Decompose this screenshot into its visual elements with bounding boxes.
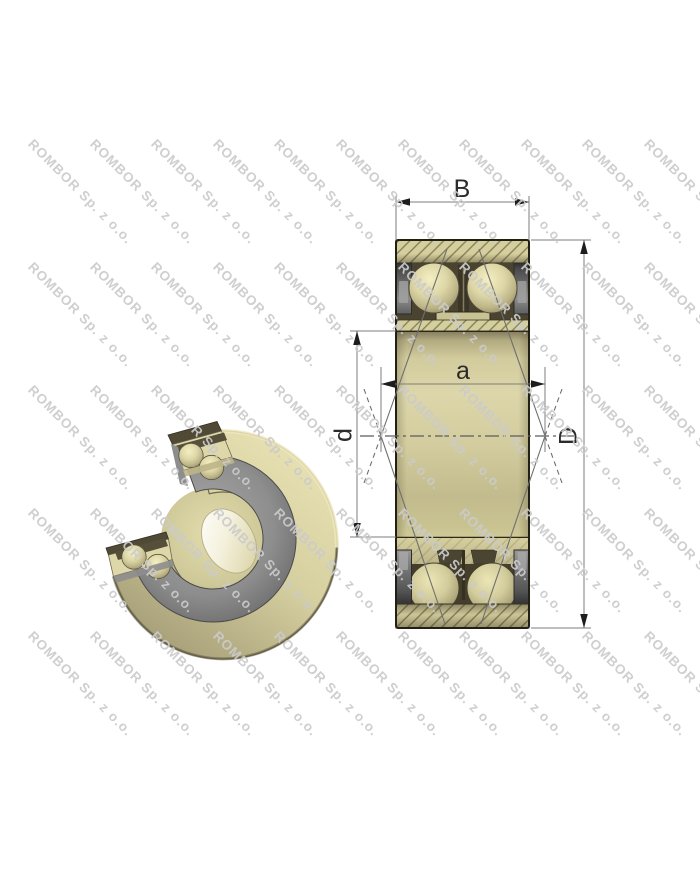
watermark-text: ROMBOR Sp. z o.o. [395,383,505,493]
watermark-text: ROMBOR Sp. z o.o. [210,629,320,739]
watermark-text: ROMBOR Sp. z o.o. [272,137,382,247]
watermark-text: ROMBOR Sp. z o.o. [580,383,690,493]
watermark-text: ROMBOR Sp. z o.o. [149,629,259,739]
watermark-text: ROMBOR Sp. z o.o. [210,383,320,493]
watermark-text: ROMBOR Sp. z o.o. [149,260,259,370]
watermark-text: ROMBOR Sp. z o.o. [457,137,567,247]
watermark-text: ROMBOR Sp. z o.o. [580,506,690,616]
watermark-text: ROMBOR Sp. z o.o. [333,260,443,370]
watermark-text: ROMBOR Sp. z o.o. [25,260,135,370]
watermark-text: ROMBOR Sp. z o.o. [87,629,197,739]
watermark-text: ROMBOR Sp. z o.o. [395,506,505,616]
watermark-text: ROMBOR Sp. z o.o. [395,629,505,739]
watermark-text: ROMBOR Sp. z o.o. [87,383,197,493]
watermark-text: ROMBOR Sp. z o.o. [149,506,259,616]
watermark-text: ROMBOR Sp. z o.o. [457,629,567,739]
watermark-text: ROMBOR Sp. z o.o. [580,629,690,739]
watermark-text: ROMBOR Sp. z o.o. [149,137,259,247]
watermark-text: ROMBOR Sp. z o.o. [518,629,628,739]
watermark-text: ROMBOR Sp. z o.o. [87,260,197,370]
watermark-text: ROMBOR Sp. z o.o. [25,629,135,739]
watermark-text: ROMBOR Sp. z o.o. [395,260,505,370]
watermark-text: ROMBOR Sp. z o.o. [333,506,443,616]
watermark-text: ROMBOR Sp. z o.o. [395,137,505,247]
watermark-text: ROMBOR Sp. z o.o. [25,383,135,493]
watermark-text: ROMBOR Sp. z o.o. [333,629,443,739]
watermark-text: ROMBOR Sp. z o.o. [272,260,382,370]
watermark-text: ROMBOR Sp. z o.o. [580,137,690,247]
watermark-text: ROMBOR Sp. z o.o. [210,506,320,616]
watermark-text: ROMBOR Sp. z o.o. [272,383,382,493]
watermark-text: ROMBOR Sp. z o.o. [333,137,443,247]
watermark-text: ROMBOR Sp. z o.o. [518,137,628,247]
watermark-text: ROMBOR Sp. z o.o. [518,260,628,370]
watermark-text: ROMBOR Sp. z o.o. [272,629,382,739]
watermark-text: ROMBOR Sp. z o.o. [457,260,567,370]
watermark-text: ROMBOR Sp. z o.o. [457,383,567,493]
watermark-text: ROMBOR Sp. z o.o. [87,506,197,616]
watermark-text: ROMBOR Sp. z o.o. [210,137,320,247]
bearing-product-drawing: B D d a ROMBOR Sp. z o.o.ROMBOR Sp. z o.… [0,0,700,869]
watermark-text: ROMBOR Sp. z o.o. [210,260,320,370]
watermark-text: ROMBOR Sp. z o.o. [457,506,567,616]
watermark-text: ROMBOR Sp. z o.o. [87,137,197,247]
watermark-text: ROMBOR Sp. z o.o. [518,383,628,493]
watermark-text: ROMBOR Sp. z o.o. [333,383,443,493]
watermark-text: ROMBOR Sp. z o.o. [25,506,135,616]
watermark-text: ROMBOR Sp. z o.o. [580,260,690,370]
watermark-text: ROMBOR Sp. z o.o. [149,383,259,493]
watermark-text: ROMBOR Sp. z o.o. [518,506,628,616]
watermark-text: ROMBOR Sp. z o.o. [272,506,382,616]
watermark-text: ROMBOR Sp. z o.o. [25,137,135,247]
watermark-layer: ROMBOR Sp. z o.o.ROMBOR Sp. z o.o.ROMBOR… [0,0,700,869]
